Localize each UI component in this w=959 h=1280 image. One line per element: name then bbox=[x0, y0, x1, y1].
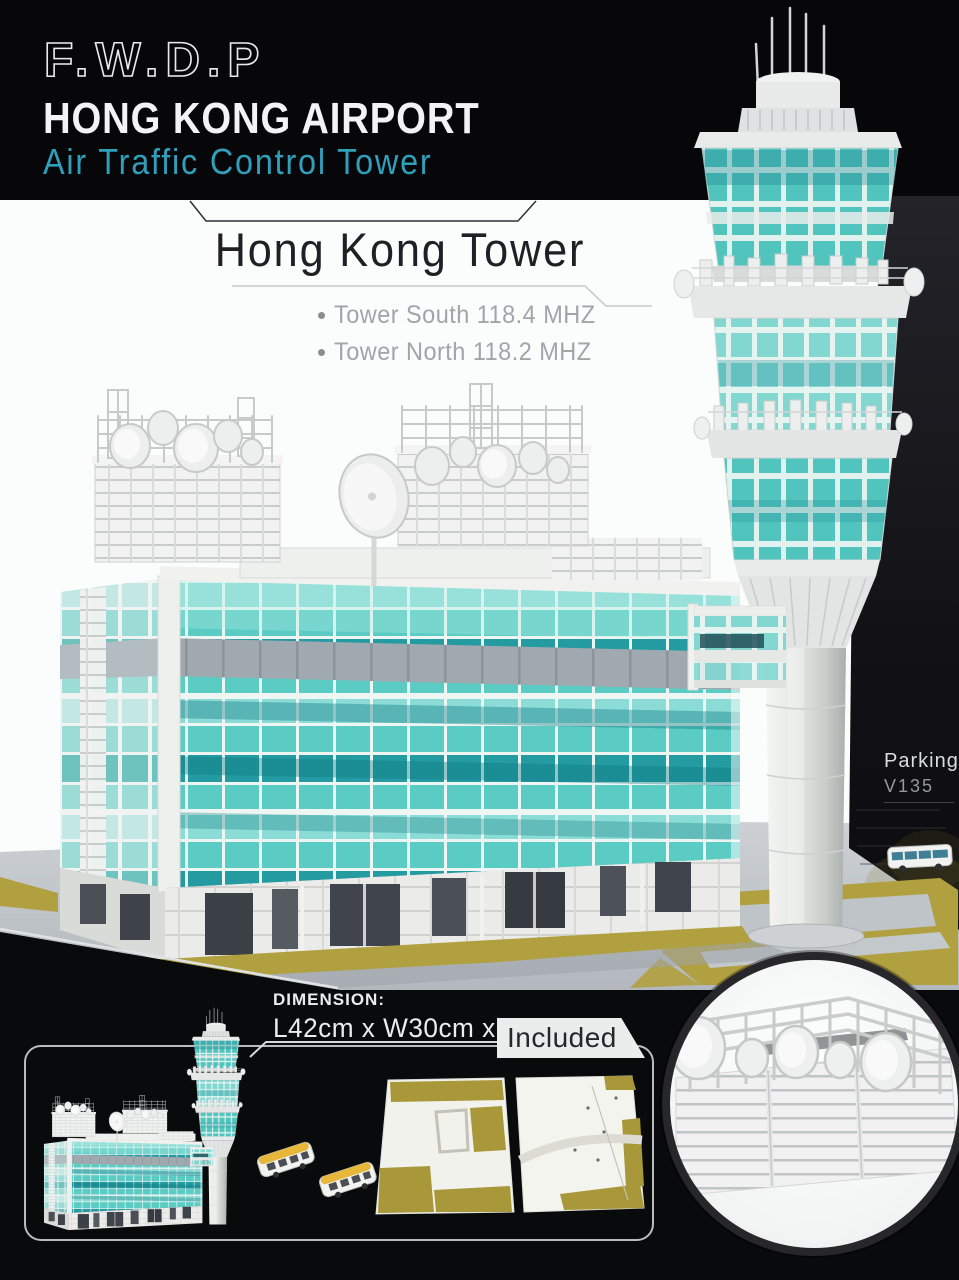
parking-sign-code: V135 bbox=[884, 776, 954, 803]
detail-inset-circle bbox=[660, 950, 959, 1258]
parking-sign-title: Parking bbox=[884, 750, 959, 773]
brand-logo-svg: F.W.D.P bbox=[40, 22, 380, 94]
scene-illustration bbox=[0, 0, 959, 1280]
tower-base bbox=[748, 924, 864, 948]
ground-mat-left bbox=[376, 1078, 514, 1214]
bullet-dot bbox=[318, 312, 325, 319]
parking-sign: Parking V135 bbox=[884, 750, 959, 803]
ground-mat-right bbox=[516, 1076, 644, 1212]
brand-logo: F.W.D.P bbox=[40, 22, 380, 99]
product-name: Hong Kong Tower bbox=[170, 222, 630, 277]
poster-subtitle: Air Traffic Control Tower bbox=[43, 141, 433, 183]
spec-label: Tower South 118.4 MHZ bbox=[334, 301, 596, 330]
frequency-spec-list: Tower South 118.4 MHZ Tower North 118.2 … bbox=[318, 297, 612, 371]
spec-label: Tower North 118.2 MHZ bbox=[334, 338, 592, 367]
product-poster: F.W.D.P HONG KONG AIRPORT Air Traffic Co… bbox=[0, 0, 959, 1280]
spec-item-tower-north: Tower North 118.2 MHZ bbox=[318, 334, 612, 371]
included-tab: Included bbox=[497, 1018, 645, 1058]
poster-title: HONG KONG AIRPORT bbox=[43, 94, 480, 144]
dimension-label: DIMENSION: bbox=[273, 990, 599, 1010]
spec-item-tower-south: Tower South 118.4 MHZ bbox=[318, 297, 612, 334]
bullet-dot bbox=[318, 349, 325, 356]
brand-logo-text: F.W.D.P bbox=[44, 34, 266, 87]
